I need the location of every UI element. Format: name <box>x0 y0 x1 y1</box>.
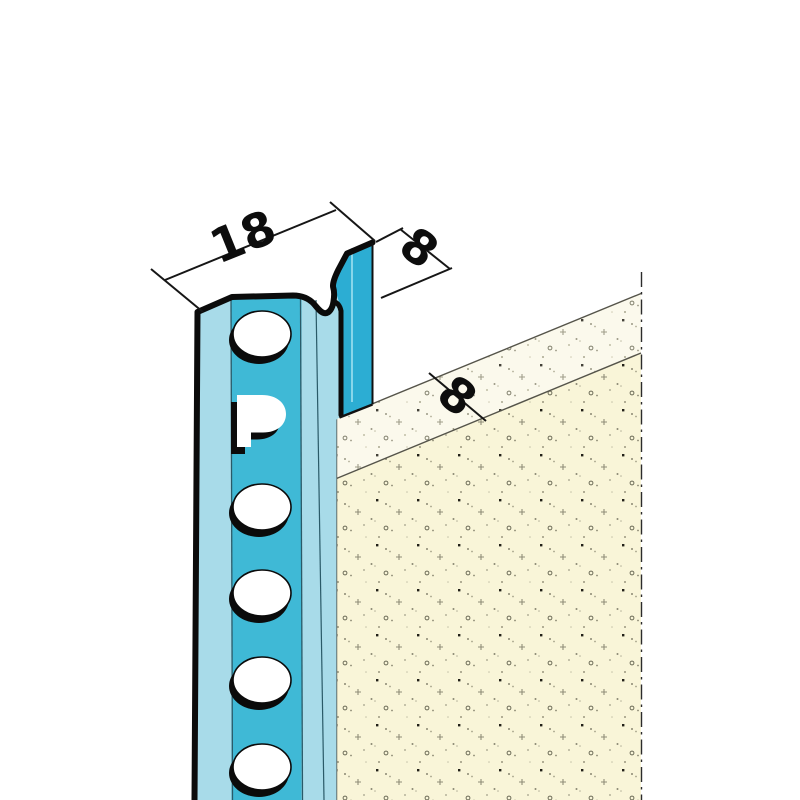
hole-opening <box>233 570 291 616</box>
hole-opening <box>233 744 291 790</box>
plaster-stop-profile-drawing: 18 8 8 <box>0 0 800 800</box>
hole-opening <box>233 311 291 357</box>
technical-drawing-page: 18 8 8 <box>0 0 800 800</box>
hole-opening <box>233 657 291 703</box>
hole-opening <box>233 484 291 530</box>
profile-center-strip <box>232 296 302 800</box>
